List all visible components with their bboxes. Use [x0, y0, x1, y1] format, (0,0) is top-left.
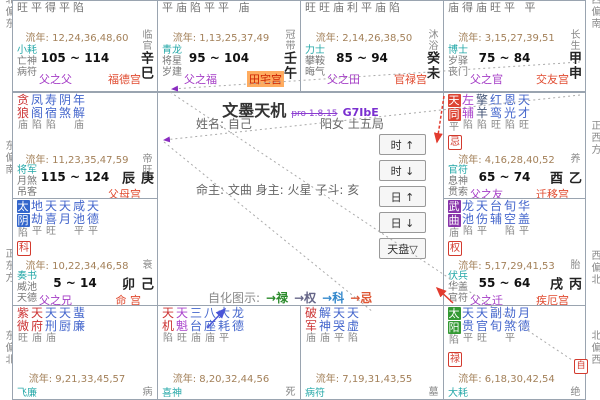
palace-si[interactable]: 旺平得平陷流年: 12,24,36,48,60小耗亡神病符105 ~ 114父之… [12, 0, 158, 92]
palace-labels: 父之父福德宫 [39, 71, 141, 87]
time-button-4[interactable]: 天盘▽ [379, 238, 426, 259]
star-list: 太阴陷地劫平天喜旺天月 咸池平天德平 [16, 200, 100, 239]
stem-branch: 甲申 [564, 51, 583, 81]
time-button-1[interactable]: 时 ↓ [379, 160, 426, 181]
compass-label-right-1: 正西方 [587, 120, 600, 156]
star-item: 副旬 [489, 307, 503, 346]
star-item: 八座庙 [203, 307, 217, 344]
palace-labels: 父之福田宅宫 [184, 71, 284, 87]
star-item: 恩光陷 [503, 94, 517, 133]
palace-chen[interactable]: 贪狼庙凤阁陷寿宿陷阴煞 年解庙流年: 11,23,35,47,59将军月煞吊客1… [12, 92, 158, 199]
gender-bureau: 阳女 土五局 [320, 115, 384, 132]
time-button-3[interactable]: 日 ↓ [379, 212, 426, 233]
stem-branch: 己卯 [117, 277, 155, 305]
birth-hua-badge: 忌 [448, 135, 462, 150]
star-main-hl: 武曲庙 [447, 200, 461, 239]
star-item: 年解庙 [72, 94, 86, 131]
palace-xu[interactable]: 武曲庙龙池陷天伤平台辅 旬空陷华盖平权流年: 5,17,29,41,53伏兵华盖… [443, 198, 586, 306]
liunian-years: 流年: 9,21,33,45,57 [13, 370, 141, 385]
legend-item-0: →禄 [266, 291, 288, 305]
star-list: 破军庙解神庙天哭平天虚陷 [304, 307, 360, 344]
minor-god: 天德 [17, 293, 37, 304]
liunian-years: 流年: 1,13,25,37,49 [158, 29, 284, 44]
changsheng-stage: 墓 [424, 386, 439, 397]
star-list: 武曲庙龙池陷天伤平台辅 旬空陷华盖平 [447, 200, 531, 239]
star-item: 三台庙 [189, 307, 203, 344]
ziwei-chart: 北偏东东偏南正东方东偏北 西偏南正西方西偏北北偏西 旺平得平陷流年: 12,24… [0, 0, 600, 400]
liunian-years: 流年: 3,15,27,39,51 [444, 29, 569, 44]
relative-palace-label: 父之兄 [39, 292, 72, 306]
palace-you[interactable]: 天同平左辅陷擎羊陷红鸾旺恩光陷天才旺忌流年: 4,16,28,40,52官符息神… [443, 92, 586, 199]
time-button-0[interactable]: 时 ↑ [379, 134, 426, 155]
changsheng-stage: 沐浴 [424, 29, 439, 51]
minor-gods-list: 大耗 [448, 388, 468, 399]
brightness-row: 庙得庙旺平 平 [448, 0, 539, 15]
star-item: 寿宿陷 [44, 94, 58, 131]
star-main-hl: 太阴陷 [16, 200, 30, 239]
palace-zi[interactable]: 破军庙解神庙天哭平天虚陷流年: 7,19,31,43,55病符墓 [300, 305, 444, 400]
time-adjust-buttons: 时 ↑时 ↓日 ↑日 ↓天盘▽ [379, 134, 426, 259]
changsheng-stage: 冠带 [281, 29, 296, 51]
selfhua-legend: 自化图示:→禄→权→科→忌 [208, 289, 372, 306]
stem-branch: 丙戌 [545, 277, 583, 305]
star-list: 太阳陷天贵平天官旺副旬 劫煞平月德 [447, 307, 531, 346]
liunian-years: 流年: 10,22,34,46,58 [13, 257, 141, 272]
stem-branch: 壬午 [279, 51, 298, 81]
minor-gods-list: 病符 [305, 388, 325, 399]
star-item: 凤阁陷 [30, 94, 44, 131]
star-item: 天贵平 [461, 307, 475, 346]
star-item: 擎羊陷 [475, 94, 489, 133]
palace-wu[interactable]: 平庙陷平平 庙流年: 1,13,25,37,49青龙将星岁建95 ~ 104父之… [157, 0, 301, 92]
changsheng-stage: 长生 [566, 29, 581, 51]
star-item: 天虚陷 [346, 307, 360, 344]
life-master-line: 命主: 文曲 身主: 火星 子斗: 亥 [196, 181, 359, 198]
compass-strip-right: 西偏南正西方西偏北北偏西 [586, 0, 599, 400]
liunian-years: 流年: 5,17,29,41,53 [444, 257, 569, 272]
star-list: 天机陷天魁旺三台庙八座庙大耗平龙德 [161, 307, 245, 344]
star-item: 地劫平 [30, 200, 44, 239]
liunian-years: 流年: 12,24,36,48,60 [13, 29, 141, 44]
stem-branch: 乙酉 [545, 171, 583, 198]
star-list: 贪狼庙凤阁陷寿宿陷阴煞 年解庙 [16, 94, 86, 131]
changsheng-stage: 死 [281, 386, 296, 397]
star-item: 旬空陷 [503, 200, 517, 239]
star-list: 紫微旺天府庙天刑庙天厨 蜚廉 [16, 307, 86, 344]
star-item: 解神庙 [318, 307, 332, 344]
star-item: 天厨 [58, 307, 72, 344]
star-item: 华盖平 [517, 200, 531, 239]
palace-wei[interactable]: 旺旺庙利平庙陷流年: 2,14,26,38,50力士攀鞍晦气85 ~ 94父之田… [300, 0, 444, 92]
minor-god: 病符 [305, 388, 325, 399]
liunian-years: 流年: 4,16,28,40,52 [444, 151, 569, 166]
star-item: 咸池平 [72, 200, 86, 239]
stem-branch: 辛巳 [136, 51, 155, 81]
star-item: 左辅陷 [461, 94, 475, 133]
compass-label-right-3: 北偏西 [587, 330, 600, 366]
changsheng-stage: 绝 [566, 386, 581, 397]
center-info-panel: 文墨天机 pro 1.8.15 G7IbE 姓名: 自己 阳女 土五局 命主: … [157, 92, 444, 306]
star-item: 红鸾旺 [489, 94, 503, 133]
star-item: 台辅 [489, 200, 503, 239]
minor-god: 吊客 [17, 187, 37, 198]
changsheng-stage: 临官 [138, 29, 153, 51]
star-item: 龙德 [231, 307, 245, 344]
minor-god: 病符 [17, 67, 37, 78]
relative-palace-label: 父之父 [39, 71, 72, 87]
minor-god: 晦气 [305, 67, 325, 78]
palace-shen[interactable]: 庙得庙旺平 平流年: 3,15,27,39,51博士岁驿丧门75 ~ 84父之官… [443, 0, 586, 92]
star-item: 贪狼庙 [16, 94, 30, 131]
minor-gods-list: 飞廉 [17, 388, 37, 399]
changsheng-stage: 养 [566, 153, 581, 164]
age-range: 105 ~ 114 [13, 51, 137, 65]
legend-item-3: →忌 [350, 291, 372, 305]
selfhua-legend-title: 自化图示: [208, 291, 260, 305]
palace-labels: 父之官交友宫 [470, 71, 569, 87]
minor-god: 大耗 [448, 388, 468, 399]
birth-hua-badge: 权 [448, 241, 462, 256]
star-item: 天机陷 [161, 307, 175, 344]
relative-palace-label: 父之田 [327, 71, 360, 87]
age-range: 85 ~ 94 [301, 51, 423, 65]
minor-god: 丧门 [448, 67, 468, 78]
star-item: 天哭平 [332, 307, 346, 344]
star-main-hl: 天同平 [447, 94, 461, 133]
liunian-years: 流年: 2,14,26,38,50 [301, 29, 427, 44]
stem-branch: 庚辰 [117, 171, 155, 198]
minor-god: 飞廉 [17, 388, 37, 399]
star-item: 大耗平 [217, 307, 231, 344]
name-field: 姓名: 自己 [196, 115, 252, 132]
relative-palace-label: 父之福 [184, 71, 217, 87]
liunian-years: 流年: 8,20,32,44,56 [158, 370, 284, 385]
star-item: 龙池陷 [461, 200, 475, 239]
palace-labels: 父之田官禄宫 [327, 71, 427, 87]
time-button-2[interactable]: 日 ↑ [379, 186, 426, 207]
minor-gods-list: 喜神 [162, 388, 182, 399]
star-item: 天刑庙 [44, 307, 58, 344]
palace-yin[interactable]: 紫微旺天府庙天刑庙天厨 蜚廉 流年: 9,21,33,45,57飞廉病 [12, 305, 158, 400]
palace-mao[interactable]: 太阴陷地劫平天喜旺天月 咸池平天德平科流年: 10,22,34,46,58奏书威… [12, 198, 158, 306]
age-range: 75 ~ 84 [444, 51, 565, 65]
changsheng-stage: 胎 [566, 259, 581, 270]
palace-chou[interactable]: 天机陷天魁旺三台庙八座庙大耗平龙德 流年: 8,20,32,44,56喜神死 [157, 305, 301, 400]
liunian-years: 流年: 11,23,35,47,59 [13, 151, 141, 166]
brightness-row: 平庙陷平平 庙 [162, 0, 253, 15]
relative-palace-label: 父之官 [470, 71, 503, 87]
star-item: 阴煞 [58, 94, 72, 131]
compass-label-right-2: 西偏北 [587, 250, 600, 286]
legend-item-2: →科 [322, 291, 344, 305]
star-item: 劫煞平 [503, 307, 517, 346]
relative-palace-label: 父之迁 [470, 292, 503, 306]
star-item: 紫微旺 [16, 307, 30, 344]
minor-god: 喜神 [162, 388, 182, 399]
star-item: 天喜旺 [44, 200, 58, 239]
changsheng-stage: 衰 [138, 259, 153, 270]
stem-branch: 癸未 [422, 51, 441, 81]
star-list: 天同平左辅陷擎羊陷红鸾旺恩光陷天才旺 [447, 94, 531, 133]
star-item: 破军庙 [304, 307, 318, 344]
changsheng-stage: 病 [138, 386, 153, 397]
liunian-years: 流年: 7,19,31,43,55 [301, 370, 427, 385]
legend-item-1: →权 [294, 291, 316, 305]
star-item: 天府庙 [30, 307, 44, 344]
age-range: 95 ~ 104 [158, 51, 280, 65]
star-item: 天德平 [86, 200, 100, 239]
star-item: 天魁旺 [175, 307, 189, 344]
brightness-row: 旺旺庙利平庙陷 [305, 0, 403, 15]
star-item: 月德 [517, 307, 531, 346]
minor-god: 岁建 [162, 67, 182, 78]
star-item: 天官旺 [475, 307, 489, 346]
star-item: 天伤平 [475, 200, 489, 239]
palace-hai[interactable]: 太阳陷天贵平天官旺副旬 劫煞平月德 禄流年: 6,18,30,42,54大耗绝 [443, 305, 586, 400]
minor-god: 贯索 [448, 187, 468, 198]
selfhua-marker: 自 [574, 359, 588, 374]
birth-hua-badge: 禄 [448, 352, 462, 367]
brightness-row: 旺平得平陷 [17, 0, 87, 15]
star-item: 蜚廉 [72, 307, 86, 344]
birth-hua-badge: 科 [17, 241, 31, 256]
star-main-hl: 太阳陷 [447, 307, 461, 346]
liunian-years: 流年: 6,18,30,42,54 [444, 370, 569, 385]
star-item: 天月 [58, 200, 72, 239]
star-item: 天才旺 [517, 94, 531, 133]
compass-label-right-0: 西偏南 [587, 0, 600, 30]
minor-god: 官符 [448, 293, 468, 304]
